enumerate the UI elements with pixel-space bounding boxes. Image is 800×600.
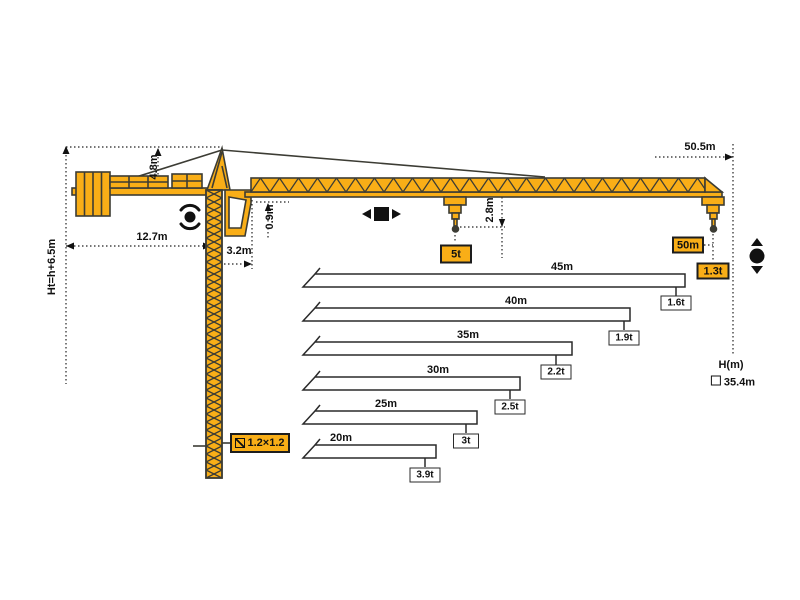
total-height-label: Ht=h+6.5m bbox=[46, 239, 58, 295]
bar-capacity-30: 2.5t bbox=[495, 400, 526, 415]
max-radius-dim: 50.5m bbox=[684, 141, 715, 153]
tip-capacity-box: 1.3t bbox=[697, 263, 730, 280]
bar-length-40: 40m bbox=[505, 295, 527, 307]
bar-length-25: 25m bbox=[375, 398, 397, 410]
slewing-icon bbox=[181, 205, 199, 228]
square-symbol-icon bbox=[711, 376, 721, 386]
jib-height-dim: 0.9m bbox=[264, 204, 276, 229]
jib-tip bbox=[705, 178, 722, 192]
counter-jib-dim: 12.7m bbox=[136, 231, 167, 243]
trolley-travel-icon bbox=[362, 207, 401, 221]
bar-25m bbox=[303, 411, 477, 424]
hook-clearance-dim: 2.8m bbox=[484, 197, 496, 222]
freestanding-height: 35.4m bbox=[711, 376, 755, 389]
bar-20m bbox=[303, 445, 436, 458]
bar-40m bbox=[303, 308, 630, 321]
jib bbox=[245, 178, 722, 197]
counterweight bbox=[76, 172, 110, 216]
bar-capacity-35: 2.2t bbox=[541, 365, 572, 380]
bar-45m bbox=[303, 274, 685, 287]
tower-head-dim: 4.8m bbox=[148, 154, 160, 179]
bar-length-35: 35m bbox=[457, 329, 479, 341]
height-axis-label: H(m) bbox=[718, 359, 743, 371]
bar-length-20: 20m bbox=[330, 432, 352, 444]
bar-30m bbox=[303, 377, 520, 390]
load-chart-bars bbox=[303, 268, 685, 467]
hoisting-icon bbox=[750, 238, 765, 274]
tower-crane-spec-diagram: Ht=h+6.5m 4.8m 12.7m 3.2m 0.9m 2.8m 50.5… bbox=[0, 0, 800, 600]
bar-capacity-45: 1.6t bbox=[661, 296, 692, 311]
tip-radius-box: 50m bbox=[672, 237, 704, 254]
bar-capacity-25: 3t bbox=[453, 434, 479, 449]
bar-length-30: 30m bbox=[427, 364, 449, 376]
bar-length-45: 45m bbox=[551, 261, 573, 273]
mast-section-box: 1.2×1.2 bbox=[230, 433, 290, 453]
tower-mast bbox=[206, 190, 222, 478]
bar-35m bbox=[303, 342, 572, 355]
bar-capacity-20: 3.9t bbox=[410, 468, 441, 483]
slewing-offset-dim: 3.2m bbox=[226, 245, 251, 257]
bar-capacity-40: 1.9t bbox=[609, 331, 640, 346]
trolley-hook-mid bbox=[444, 197, 466, 232]
trolley-hook-tip bbox=[702, 197, 724, 232]
max-capacity-box: 5t bbox=[440, 245, 472, 264]
section-symbol-icon bbox=[235, 438, 245, 448]
